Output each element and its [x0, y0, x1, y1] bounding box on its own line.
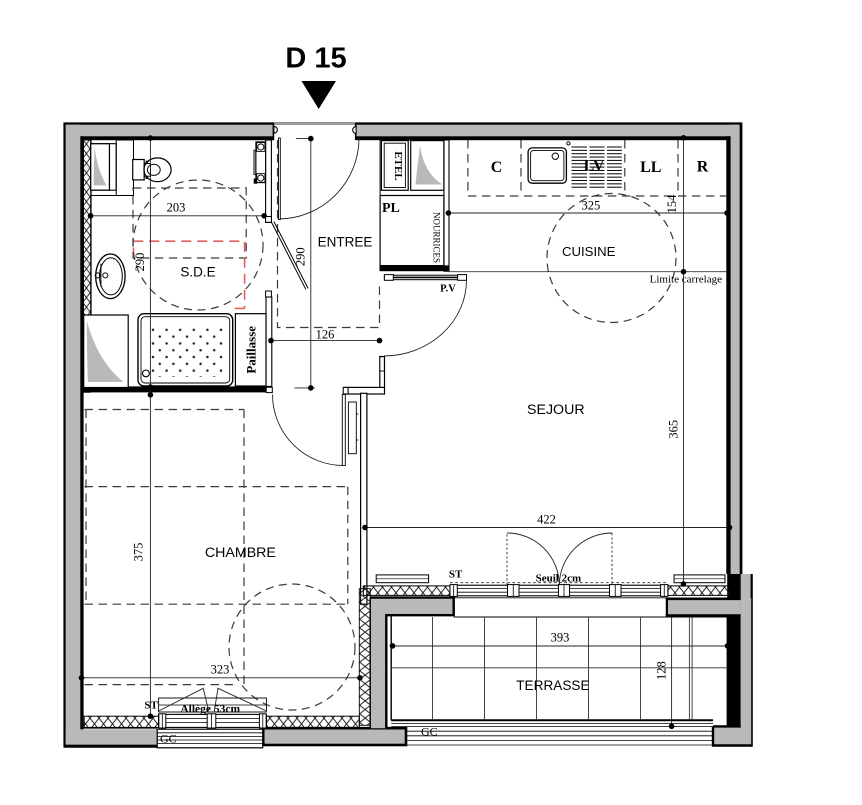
svg-text:ENTREE: ENTREE	[318, 234, 373, 249]
svg-text:CHAMBRE: CHAMBRE	[205, 545, 276, 561]
svg-text:365: 365	[666, 420, 680, 439]
svg-text:D 15: D 15	[285, 43, 346, 75]
svg-text:325: 325	[582, 198, 601, 212]
svg-text:LV: LV	[584, 158, 605, 175]
svg-text:290: 290	[294, 247, 308, 266]
svg-text:393: 393	[551, 631, 570, 645]
svg-text:LL: LL	[640, 159, 661, 176]
svg-text:CUISINE: CUISINE	[562, 244, 616, 259]
svg-text:R: R	[697, 159, 709, 176]
svg-text:375: 375	[131, 543, 145, 562]
svg-text:P.V: P.V	[440, 284, 456, 295]
svg-text:PL: PL	[382, 201, 400, 216]
svg-text:GC: GC	[160, 732, 177, 746]
svg-text:128: 128	[654, 661, 668, 680]
svg-text:TERRASSE: TERRASSE	[516, 678, 589, 693]
svg-text:Seuil 2cm: Seuil 2cm	[536, 572, 582, 584]
svg-text:ST: ST	[144, 700, 158, 712]
svg-text:126: 126	[316, 328, 335, 342]
svg-text:SEJOUR: SEJOUR	[527, 402, 585, 418]
svg-text:ETEL: ETEL	[392, 151, 404, 180]
svg-text:Paillasse: Paillasse	[244, 326, 259, 374]
svg-text:154: 154	[665, 194, 679, 214]
svg-text:C: C	[491, 159, 503, 176]
svg-text:GC: GC	[421, 724, 438, 738]
svg-text:422: 422	[537, 513, 556, 527]
svg-text:Allège 53cm: Allège 53cm	[180, 704, 240, 716]
svg-text:323: 323	[211, 663, 230, 677]
svg-text:203: 203	[167, 201, 186, 215]
svg-text:290: 290	[133, 253, 147, 272]
svg-text:Limite carrelage: Limite carrelage	[650, 274, 722, 286]
svg-text:ST: ST	[449, 569, 463, 581]
svg-text:S.D.E: S.D.E	[180, 264, 215, 279]
svg-text:NOURRICES: NOURRICES	[432, 212, 442, 263]
